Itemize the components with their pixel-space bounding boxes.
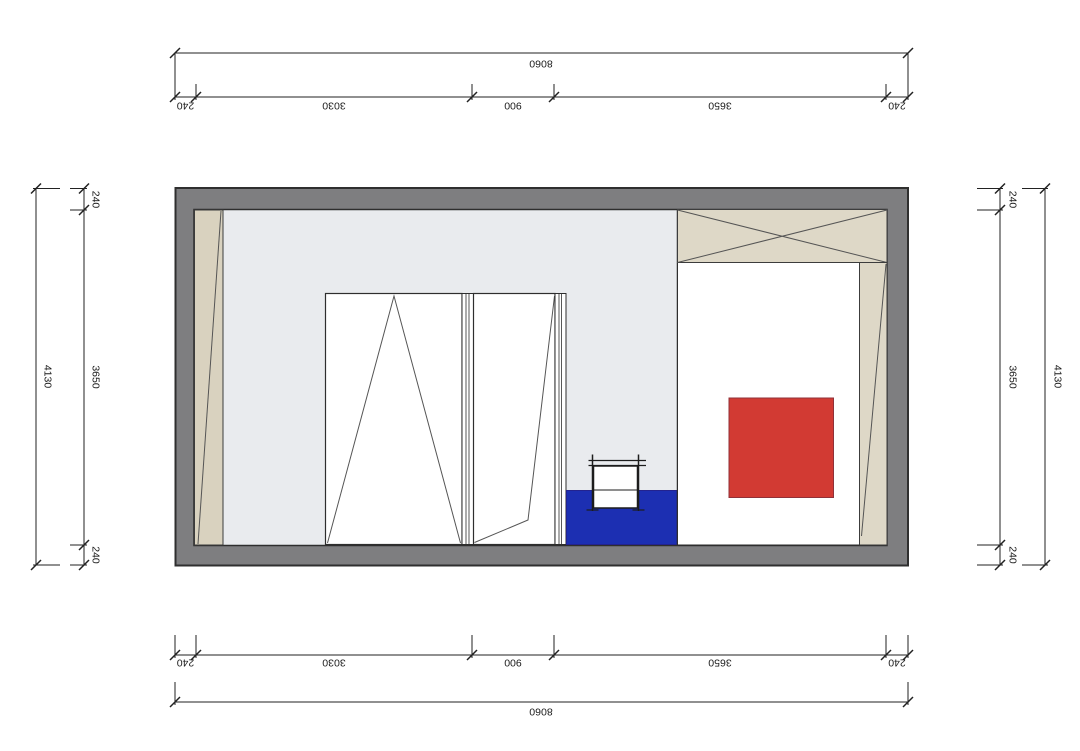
dim-bottom-overall (170, 682, 913, 707)
dim-label: 3030 (322, 657, 346, 669)
dim-label: 240 (177, 657, 195, 669)
mullion-2 (555, 294, 566, 545)
dim-left-chain (70, 184, 89, 571)
dim-label: 900 (504, 100, 522, 112)
dim-label: 240 (888, 100, 906, 112)
left-jamb-strip (195, 210, 224, 545)
dim-label: 8060 (529, 706, 553, 718)
dim-top-chain (170, 84, 913, 102)
dim-label: 240 (90, 191, 102, 209)
dim-label: 240 (1007, 546, 1019, 564)
dim-label: 4130 (1052, 365, 1064, 389)
dim-right-overall (1022, 184, 1050, 571)
right-jamb-strip (860, 263, 888, 546)
dim-label: 240 (177, 100, 195, 112)
window-panel-2 (474, 294, 556, 545)
dim-bottom-chain (170, 635, 913, 660)
dim-label: 3650 (90, 365, 102, 389)
dim-label: 8060 (529, 58, 553, 70)
dim-label: 3650 (708, 100, 732, 112)
dim-label: 3030 (322, 100, 346, 112)
dim-label: 240 (888, 657, 906, 669)
window-panel-1 (326, 294, 463, 545)
plan-canvas: 8060 240 3030 900 3650 240 240 3030 900 … (0, 0, 1080, 751)
dim-label: 3650 (708, 657, 732, 669)
dim-label: 240 (1007, 191, 1019, 209)
dim-label: 4130 (42, 365, 54, 389)
dim-label: 240 (90, 546, 102, 564)
plan-body (176, 188, 909, 566)
dim-label: 900 (504, 657, 522, 669)
red-square (729, 398, 834, 498)
dim-label: 3650 (1007, 365, 1019, 389)
mullion-1 (462, 294, 474, 545)
plan-drawing: 8060 240 3030 900 3650 240 240 3030 900 … (0, 0, 1080, 751)
dim-right-chain (977, 184, 1005, 571)
lintel-band (678, 210, 888, 263)
